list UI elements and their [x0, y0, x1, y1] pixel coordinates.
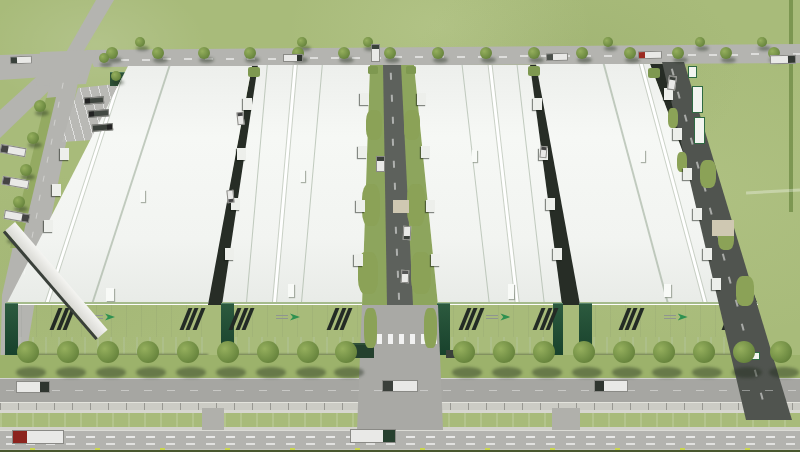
tree-shadow — [136, 367, 166, 378]
tree — [297, 341, 319, 363]
lane-dash — [673, 390, 681, 391]
tree-shadow — [176, 367, 206, 378]
lane-dash — [709, 54, 717, 56]
lane-dash — [586, 443, 595, 445]
dock-canopy — [52, 184, 61, 196]
dock-canopy — [683, 168, 692, 180]
lane-dash — [512, 390, 520, 391]
paved-pad — [712, 220, 734, 236]
lane-dash — [606, 436, 615, 438]
truck-cab — [547, 54, 553, 60]
warehouse-2-stripe-group — [331, 308, 348, 330]
roof-vent — [288, 284, 294, 297]
curb-marker — [95, 448, 100, 451]
lane-dash — [286, 443, 295, 445]
lane-dash — [310, 57, 318, 59]
lane-dash — [246, 443, 255, 445]
dock-canopy — [225, 248, 234, 260]
dock-canopy — [60, 148, 69, 160]
lane-dash — [650, 390, 658, 391]
tree — [99, 53, 109, 63]
lane-dash — [121, 390, 129, 391]
lane-dash — [166, 436, 175, 438]
truck — [371, 44, 380, 62]
logo-text — [486, 315, 498, 320]
lane-dash — [213, 390, 221, 391]
lane-dash — [246, 436, 255, 438]
lane-dash — [391, 95, 393, 102]
logo-text — [276, 315, 288, 320]
lane-dash — [390, 73, 392, 80]
tree — [177, 341, 199, 363]
logo-text — [664, 315, 676, 320]
lane-dash — [446, 443, 455, 445]
lane-dash — [397, 271, 399, 278]
lane-dash — [166, 443, 175, 445]
lane-dash — [226, 436, 235, 438]
truck-cab — [22, 214, 30, 222]
tree — [20, 164, 32, 176]
lane-dash — [426, 443, 435, 445]
truck — [0, 144, 27, 157]
warehouse-1-stripe-group — [54, 308, 71, 330]
truck-cab — [377, 157, 384, 161]
tree — [135, 37, 145, 47]
tree-shadow — [572, 367, 602, 378]
curb-marker — [485, 448, 490, 451]
parked-trailer — [694, 117, 705, 144]
curb-marker — [420, 448, 425, 451]
lane-dash — [226, 443, 235, 445]
lane-dash — [746, 436, 755, 438]
tree — [720, 47, 732, 59]
truck-cab — [40, 382, 49, 392]
lane-dash — [627, 390, 635, 391]
warehouse-1-corner-tower — [5, 303, 18, 357]
tree-shadow — [452, 367, 482, 378]
roof-vent — [106, 288, 114, 301]
truck — [92, 123, 113, 131]
lane-dash — [466, 443, 475, 445]
curb-marker — [550, 448, 555, 451]
tree-shadow — [334, 367, 364, 378]
parked-trailer — [692, 86, 703, 113]
lane-dash — [666, 443, 675, 445]
tree-shadow — [56, 367, 86, 378]
lane-dash — [546, 436, 555, 438]
lane-dash — [742, 390, 750, 391]
lane-dash — [626, 436, 635, 438]
logo-text-line — [276, 315, 288, 317]
dock-canopy — [431, 254, 440, 266]
lane-dash — [374, 390, 382, 391]
truck — [403, 226, 411, 240]
lane-dash — [696, 390, 704, 391]
parked-trailer — [688, 66, 697, 78]
dock-canopy — [354, 254, 363, 266]
lane-dash — [86, 436, 95, 438]
grass-patch — [736, 276, 754, 306]
lane-dash — [266, 443, 275, 445]
tree-shadow — [296, 367, 326, 378]
lane-dash — [167, 390, 175, 391]
lane-dash — [268, 57, 276, 59]
tree — [137, 341, 159, 363]
lane-dash — [581, 390, 589, 391]
roof-vent — [640, 150, 645, 162]
truck-cab — [402, 271, 408, 274]
lane-dash — [506, 443, 515, 445]
tree — [17, 341, 39, 363]
lane-dash — [331, 57, 339, 59]
tree — [257, 341, 279, 363]
tree — [576, 47, 588, 59]
curb-marker — [225, 448, 230, 451]
truck-cab — [383, 381, 393, 391]
roof-vent — [508, 284, 514, 299]
dock-canopy — [243, 98, 252, 110]
lane-dash — [558, 390, 566, 391]
truck-cab — [372, 45, 379, 49]
tree — [653, 341, 675, 363]
warehouse-4-stripe-group — [623, 308, 640, 330]
lane-dash — [489, 390, 497, 391]
lane-dash — [346, 443, 355, 445]
roof-vent — [140, 190, 145, 202]
lane-dash — [106, 436, 115, 438]
lane-dash — [766, 443, 775, 445]
tree — [453, 341, 475, 363]
roof-vent — [300, 170, 305, 182]
lane-dash — [526, 436, 535, 438]
grass-patch — [364, 308, 377, 348]
truck — [84, 96, 104, 104]
tree — [198, 47, 210, 59]
tree — [384, 47, 396, 59]
truck-cab — [3, 177, 11, 185]
tree — [297, 37, 307, 47]
zebra-stripe — [388, 334, 393, 344]
grass-patch — [668, 108, 678, 128]
grass-patch — [411, 252, 431, 294]
dock-canopy — [356, 200, 365, 212]
lane-dash — [506, 436, 515, 438]
dock-canopy — [417, 93, 426, 105]
lane-dash — [486, 443, 495, 445]
warehouse-3-company-logo — [486, 312, 518, 322]
truck — [638, 51, 662, 59]
lane-dash — [226, 58, 234, 60]
tree — [603, 37, 613, 47]
lane-dash — [499, 55, 507, 57]
curb-marker — [290, 448, 295, 451]
lane-dash — [236, 390, 244, 391]
lane-dash — [142, 59, 150, 61]
dock-canopy — [703, 248, 712, 260]
lane-dash — [457, 56, 465, 58]
lane-dash — [566, 443, 575, 445]
lane-dash — [326, 436, 335, 438]
lane-dash — [626, 443, 635, 445]
hedge-wedge — [248, 67, 260, 77]
lane-dash — [126, 436, 135, 438]
lane-dash — [146, 436, 155, 438]
logo-arrow-icon — [500, 312, 510, 322]
lane-dash — [398, 293, 400, 300]
truck — [401, 270, 409, 283]
truck-cab — [639, 52, 645, 58]
lane-dash — [286, 436, 295, 438]
truck-cab — [228, 199, 233, 202]
truck — [770, 55, 796, 64]
truck — [546, 53, 568, 61]
curb-marker — [680, 448, 685, 451]
lane-dash — [126, 443, 135, 445]
lane-dash — [526, 443, 535, 445]
lane-dash — [765, 390, 773, 391]
tree — [757, 37, 767, 47]
dock-canopy — [360, 93, 369, 105]
dock-canopy — [44, 220, 53, 232]
lane-dash — [686, 443, 695, 445]
tree — [244, 47, 256, 59]
curb-marker — [355, 448, 360, 451]
lane-dash — [106, 443, 115, 445]
tree — [573, 341, 595, 363]
lane-dash — [351, 390, 359, 391]
truck-cab — [1, 145, 9, 153]
lane-dash — [726, 436, 735, 438]
truck — [12, 430, 64, 444]
curb-marker — [160, 448, 165, 451]
logo-text-line — [276, 318, 288, 320]
truck — [539, 146, 547, 159]
lane-dash — [426, 436, 435, 438]
lane-dash — [443, 390, 451, 391]
truck — [594, 380, 628, 392]
lane-dash — [306, 436, 315, 438]
canal-crossing — [202, 408, 224, 432]
lane-dash — [66, 436, 75, 438]
warehouse-3-stripe-group — [537, 308, 554, 330]
industrial-park-render — [0, 0, 800, 452]
warehouse-3-stripe-group — [463, 308, 480, 330]
dock-canopy — [426, 200, 435, 212]
truck-cab — [297, 55, 302, 61]
dock-canopy — [553, 248, 562, 260]
lane-dash — [546, 443, 555, 445]
lane-dash — [786, 436, 795, 438]
tree-shadow — [532, 367, 562, 378]
tree — [217, 341, 239, 363]
tree — [693, 341, 715, 363]
lane-dash — [386, 443, 395, 445]
lane-dash — [86, 443, 95, 445]
dock-canopy — [421, 146, 430, 158]
tree-shadow — [692, 367, 722, 378]
truck — [376, 156, 385, 172]
warehouse-4-company-logo — [664, 312, 696, 322]
lane-dash — [420, 390, 428, 391]
truck-cab — [541, 147, 546, 150]
hedge-wedge — [528, 66, 540, 76]
grass-patch — [700, 160, 716, 188]
lane-dash — [52, 390, 60, 391]
truck-cab — [89, 111, 95, 116]
lane-dash — [326, 443, 335, 445]
tree — [13, 196, 25, 208]
truck-cab — [85, 98, 90, 103]
warehouse-2-stripe-group — [233, 308, 250, 330]
tree — [432, 47, 444, 59]
grass-patch — [366, 110, 382, 140]
lane-dash — [190, 390, 198, 391]
logo-text-line — [486, 318, 498, 320]
lane-dash — [6, 390, 14, 391]
logo-arrow-icon — [678, 312, 688, 322]
truck-cab — [788, 56, 795, 63]
truck-cab — [11, 57, 17, 63]
logo-arrow-icon — [290, 312, 300, 322]
truck-cab — [13, 431, 27, 443]
tree — [111, 71, 121, 81]
tree — [57, 341, 79, 363]
tree — [152, 47, 164, 59]
roof-vent — [472, 150, 477, 162]
curb-marker — [30, 448, 35, 451]
lane-dash — [75, 390, 83, 391]
lane-dash — [586, 436, 595, 438]
lane-dash — [282, 390, 290, 391]
lane-dash — [406, 443, 415, 445]
zebra-stripe — [410, 334, 415, 344]
hedge-wedge — [368, 66, 378, 74]
tree — [97, 341, 119, 363]
dock-canopy — [358, 146, 367, 158]
lane-dash — [144, 390, 152, 391]
dock-canopy — [693, 208, 702, 220]
truck — [10, 56, 32, 65]
truck-cab — [595, 381, 604, 391]
lane-dash — [788, 390, 796, 391]
tree — [480, 47, 492, 59]
tree — [338, 47, 350, 59]
lane-dash — [392, 117, 394, 124]
lane-dash — [121, 59, 129, 61]
lane-dash — [366, 443, 375, 445]
roof-vent — [664, 284, 671, 297]
lane-dash — [666, 436, 675, 438]
curb-marker — [745, 448, 750, 451]
tree — [624, 47, 636, 59]
lane-dash — [259, 390, 267, 391]
lane-dash — [446, 436, 455, 438]
truck-cab — [237, 113, 242, 116]
grass-patch — [404, 110, 420, 140]
zebra-stripe — [399, 334, 404, 344]
lane-dash — [746, 443, 755, 445]
truck-cab — [669, 77, 675, 81]
tree-shadow — [16, 367, 46, 378]
lane-dash — [146, 443, 155, 445]
tree-shadow — [612, 367, 642, 378]
tree — [335, 341, 357, 363]
lane-dash — [719, 390, 727, 391]
lane-dash — [266, 436, 275, 438]
lane-dash — [186, 436, 195, 438]
lane-dash — [466, 436, 475, 438]
tree-shadow — [492, 367, 522, 378]
hedge-row — [789, 0, 793, 212]
tree-shadow — [769, 367, 799, 378]
truck-cab — [383, 430, 395, 442]
lane-dash — [786, 443, 795, 445]
truck — [350, 429, 396, 443]
paved-pad — [393, 200, 409, 213]
lane-dash — [186, 443, 195, 445]
tree-shadow — [732, 367, 762, 378]
lane-dash — [706, 436, 715, 438]
lane-dash — [306, 443, 315, 445]
tree — [672, 47, 684, 59]
tree-shadow — [216, 367, 246, 378]
truck-cab — [107, 124, 113, 129]
dock-canopy — [673, 128, 682, 140]
dock-canopy — [546, 198, 555, 210]
tree — [27, 132, 39, 144]
truck — [16, 381, 50, 393]
lane-dash — [706, 443, 715, 445]
lane-dash — [486, 436, 495, 438]
tree-shadow — [96, 367, 126, 378]
lane-dash — [766, 436, 775, 438]
dock-canopy — [712, 278, 721, 290]
lane-dash — [646, 443, 655, 445]
tree — [34, 100, 46, 112]
logo-text-line — [486, 315, 498, 317]
tree — [695, 37, 705, 47]
lane-dash — [466, 390, 474, 391]
tree — [613, 341, 635, 363]
tree — [770, 341, 792, 363]
warehouse-1-stripe-group — [184, 308, 201, 330]
lane-dash — [66, 443, 75, 445]
tree-shadow — [256, 367, 286, 378]
truck — [88, 109, 109, 117]
lane-dash — [206, 436, 215, 438]
lane-dash — [305, 390, 313, 391]
tree — [733, 341, 755, 363]
lane-dash — [328, 390, 336, 391]
lane-dash — [566, 436, 575, 438]
zebra-stripe — [377, 334, 382, 344]
truck — [226, 190, 234, 204]
warehouse-2-company-logo — [276, 312, 308, 322]
hedge-wedge — [648, 68, 660, 78]
truck — [382, 380, 418, 392]
logo-arrow-icon — [105, 312, 115, 322]
dock-canopy — [237, 148, 246, 160]
logo-text-line — [664, 315, 676, 317]
lane-dash — [406, 436, 415, 438]
truck — [236, 112, 244, 126]
lane-dash — [688, 54, 696, 56]
lane-dash — [206, 443, 215, 445]
lane-dash — [606, 443, 615, 445]
tree — [528, 47, 540, 59]
lane-dash — [535, 390, 543, 391]
canal-crossing — [552, 408, 580, 432]
